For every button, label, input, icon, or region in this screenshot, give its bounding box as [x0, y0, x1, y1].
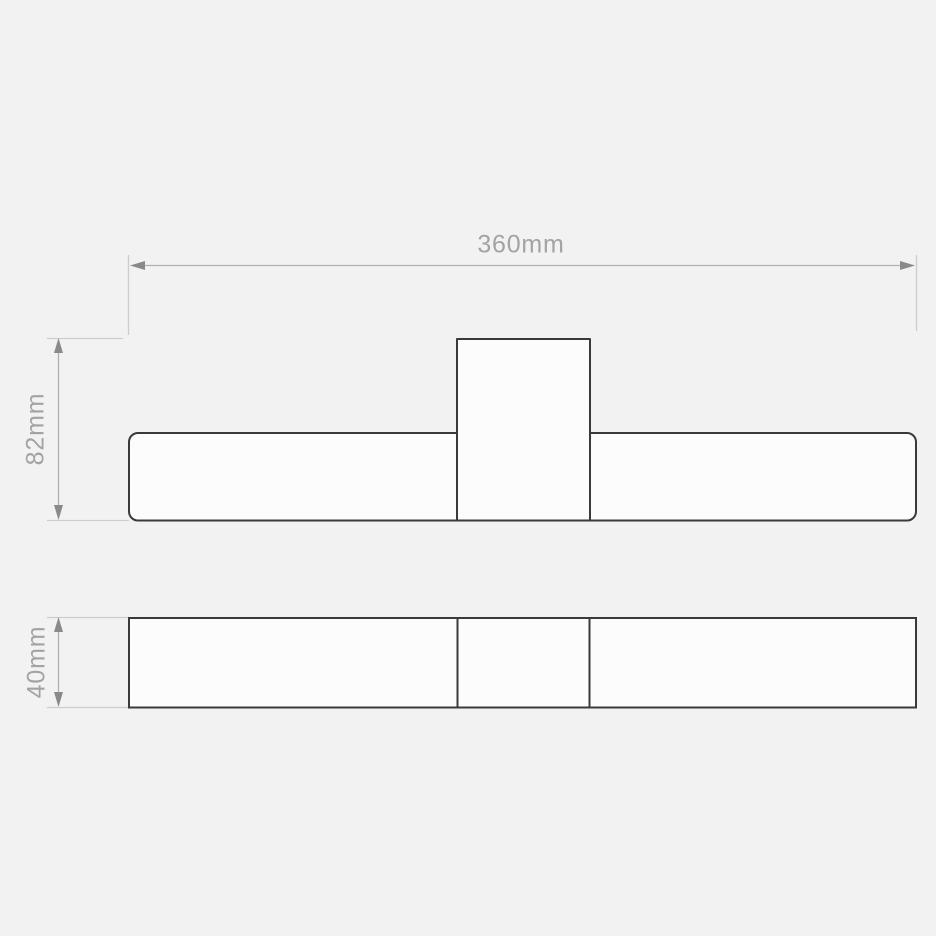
width-arrow-right-icon: [900, 261, 915, 270]
height-arrow-down-icon: [54, 505, 63, 520]
height-arrow-up-icon: [54, 338, 63, 353]
width-dimension-label: 360mm: [477, 231, 564, 260]
depth-arrow-down-icon: [54, 692, 63, 707]
drawing-linework: [0, 0, 936, 936]
depth-arrow-up-icon: [54, 617, 63, 632]
dimension-drawing: 360mm 82mm 40mm: [0, 0, 936, 936]
bottom-view: [129, 618, 916, 708]
bottom-view-bar: [129, 618, 916, 708]
height-dimension-label: 82mm: [22, 393, 51, 466]
front-view-backplate: [457, 339, 590, 521]
width-arrow-left-icon: [130, 261, 145, 270]
front-view: [129, 339, 916, 521]
depth-dimension-label: 40mm: [23, 626, 52, 699]
